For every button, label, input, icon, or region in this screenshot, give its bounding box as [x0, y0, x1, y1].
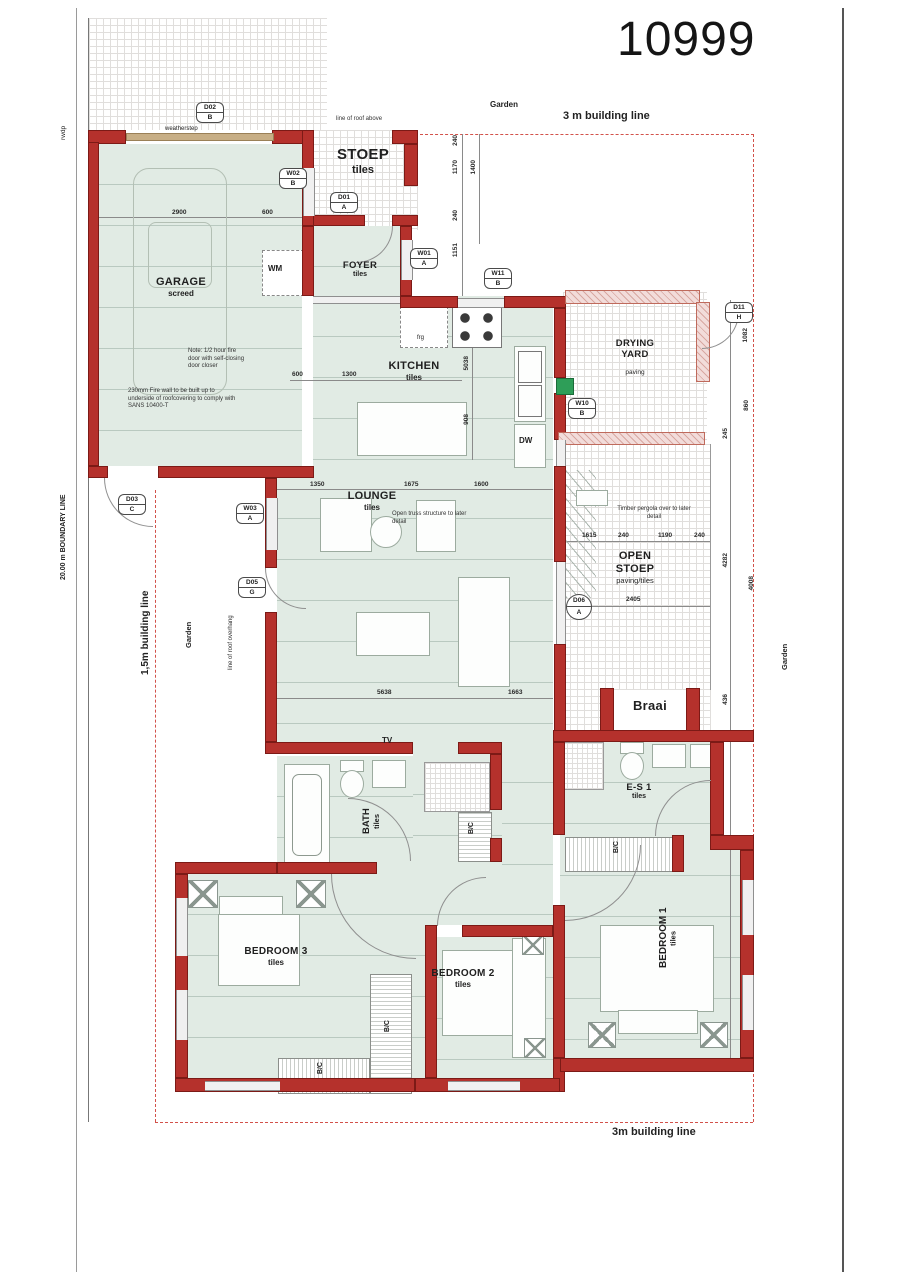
room-label-stoep: STOEP tiles	[320, 146, 406, 177]
dw-label: DW	[519, 436, 532, 445]
screen-wall	[565, 290, 700, 304]
stove	[452, 306, 502, 348]
building-line-label-bottom: 3m building line	[612, 1126, 696, 1138]
room-name: E-S 1	[614, 782, 664, 793]
open-stoep-edge	[710, 444, 711, 690]
room-label-open-stoep: OPEN STOEP paving/tiles	[600, 550, 670, 585]
sink-bowl	[518, 385, 542, 417]
window	[205, 1081, 280, 1091]
opening-rev: G	[239, 588, 265, 597]
fridge	[400, 306, 448, 348]
door-swing-d05	[265, 568, 306, 609]
opening-rev: H	[726, 313, 752, 322]
dim-label: 4282	[722, 553, 729, 567]
armchair	[416, 500, 456, 552]
garage-door	[126, 133, 274, 141]
toilet	[620, 752, 644, 780]
bedside-lamp	[296, 880, 326, 908]
room-label-bedroom1: BEDROOM 1 tiles	[658, 898, 678, 978]
dim-label: 1675	[404, 481, 418, 488]
opening-rev: B	[569, 409, 595, 418]
room-label-drying-yard: DRYING YARD paving	[598, 338, 672, 377]
bathtub-inner	[292, 774, 322, 856]
dim-line	[277, 698, 553, 699]
opening-chip-w02: W02 B	[279, 168, 307, 189]
room-label-bedroom3: BEDROOM 3 tiles	[216, 946, 336, 968]
bic-label: B/C	[468, 822, 475, 834]
room-finish: paving/tiles	[600, 576, 670, 585]
wall	[458, 742, 502, 754]
dim-label: 1082	[742, 328, 749, 342]
wall	[313, 215, 365, 226]
room-label-lounge: LOUNGE tiles	[330, 490, 414, 513]
bic-label: B/C	[317, 1062, 324, 1074]
gate-marker	[556, 378, 574, 395]
wm-label: WM	[268, 264, 282, 273]
opening-rev: B	[485, 279, 511, 288]
opening-chip-d11: D11 H	[725, 302, 753, 323]
dim-label: 240	[694, 532, 705, 539]
dim-label: 240	[452, 135, 459, 146]
cabinet	[458, 577, 510, 687]
opening-chip-w10: W10 B	[568, 398, 596, 419]
dim-label: 1600	[474, 481, 488, 488]
wall	[175, 862, 277, 874]
open-stoep-note: Timber pergola over to later detail	[612, 506, 696, 521]
dim-label: 1151	[452, 243, 459, 257]
bed	[600, 925, 714, 1012]
dim-label: 908	[463, 414, 470, 425]
floor-plan-sheet: 10999 weatherstep	[0, 0, 922, 1280]
dim-label: 2405	[626, 596, 640, 603]
window-w11	[458, 298, 504, 308]
room-label-bedroom2: BEDROOM 2 tiles	[408, 968, 518, 990]
room-finish: paving	[598, 369, 672, 377]
dim-line	[277, 489, 553, 490]
room-name: STOEP	[600, 563, 670, 576]
plan-number: 10999	[617, 12, 755, 67]
room-name: OPEN	[600, 550, 670, 563]
weatherstep-label: weatherstep	[165, 126, 198, 132]
bed	[442, 950, 516, 1036]
opening-rev: C	[119, 505, 145, 514]
dim-line	[479, 134, 480, 244]
wall	[504, 296, 566, 308]
opening-code: W10	[569, 399, 595, 409]
opening-chip-w11: W11 B	[484, 268, 512, 289]
roof-note-top: line of roof above	[336, 116, 406, 124]
wall	[600, 688, 614, 732]
wall	[88, 142, 99, 466]
dim-label: 1350	[310, 481, 324, 488]
wall	[554, 308, 566, 378]
opening-chip-d03: D03 C	[118, 494, 146, 515]
wall	[404, 144, 418, 186]
garden-label-top: Garden	[490, 100, 518, 109]
opening-chip-w03: W03 A	[236, 503, 264, 524]
dim-label: 860	[743, 400, 750, 411]
opening-code: W11	[485, 269, 511, 279]
lounge-note: Open truss structure to later detail	[392, 511, 482, 526]
opening-rev: A	[331, 203, 357, 212]
wall	[392, 130, 418, 144]
drying-yard-door	[556, 440, 566, 466]
bedside-lamp	[524, 1038, 546, 1058]
room-finish: tiles	[408, 980, 518, 990]
room-name: GARAGE	[138, 276, 224, 289]
dim-line	[462, 134, 463, 296]
building-line-top	[420, 134, 754, 135]
dim-label: 240	[452, 210, 459, 221]
coffee-table	[356, 612, 430, 656]
room-label-bath: BATH tiles	[362, 790, 382, 852]
dim-label: 240	[618, 532, 629, 539]
dim-label: 1170	[452, 160, 459, 174]
wall	[672, 835, 684, 872]
washing-machine	[262, 250, 304, 296]
opening-code: D02	[197, 103, 223, 113]
rwdp-label: rwdp	[60, 100, 67, 140]
kitchen-island	[357, 402, 467, 456]
dishwasher	[514, 424, 546, 468]
room-label-garage: GARAGE screed	[138, 276, 224, 299]
room-name: FOYER	[330, 260, 390, 271]
opening-code: D06	[567, 595, 591, 607]
opening-rev: A	[567, 607, 591, 618]
opening-code: W03	[237, 504, 263, 514]
wall	[553, 730, 754, 742]
wall	[425, 925, 437, 1078]
room-name: LOUNGE	[330, 490, 414, 503]
garage-fire-door-note: Note: 1/2 hour fire door with self-closi…	[188, 348, 248, 371]
opening-code: D11	[726, 303, 752, 313]
pillows	[618, 1010, 698, 1034]
wall	[462, 925, 553, 937]
dim-label: 5038	[463, 356, 470, 370]
opening-chip-d02: D02 B	[196, 102, 224, 123]
opening-code: W02	[280, 169, 306, 179]
opening-rev: A	[411, 259, 437, 268]
wall	[560, 1058, 754, 1072]
bench	[576, 490, 608, 506]
bic-cupboard	[370, 974, 412, 1094]
opening-code: D05	[239, 578, 265, 588]
room-label-kitchen: KITCHEN tiles	[372, 360, 456, 383]
opening-chip-d06: D06 A	[566, 594, 592, 620]
wall	[265, 612, 277, 742]
room-finish: tiles	[330, 271, 390, 279]
roof-note-left: line of roof overhang	[228, 580, 236, 670]
bedroom3-door-gap	[377, 862, 415, 874]
window	[176, 990, 188, 1040]
opening-code: D01	[331, 193, 357, 203]
garden-label-right: Garden	[780, 620, 789, 670]
shower	[424, 762, 490, 812]
bic-label: B/C	[613, 841, 620, 853]
garden-label-left: Garden	[184, 598, 193, 648]
room-finish: tiles	[373, 790, 382, 852]
opening-chip-w01: W01 A	[410, 248, 438, 269]
dim-label: 4008	[748, 576, 755, 590]
wall	[400, 296, 458, 308]
opening-chip-d05: D05 G	[238, 577, 266, 598]
room-name: BEDROOM 3	[216, 946, 336, 958]
dim-label: 1300	[342, 371, 356, 378]
dim-label: 245	[722, 428, 729, 439]
dim-label: 1190	[658, 532, 672, 539]
dim-label: 5638	[377, 689, 391, 696]
basin	[652, 744, 686, 768]
room-label-braai: Braai	[622, 698, 678, 714]
opening-rev: B	[280, 179, 306, 188]
dim-label: 436	[722, 694, 729, 705]
wall	[490, 838, 502, 862]
wall	[553, 905, 565, 1058]
room-name: BEDROOM 2	[408, 968, 518, 980]
toilet	[340, 770, 364, 798]
foyer-beam	[313, 296, 400, 304]
corridor-floor	[502, 742, 553, 874]
room-name: KITCHEN	[372, 360, 456, 373]
page-border-left	[76, 8, 77, 1272]
window	[742, 975, 754, 1030]
wall	[553, 742, 565, 835]
dim-label: 1400	[470, 160, 477, 174]
building-line-left	[155, 490, 156, 1122]
fridge-label: frg	[417, 335, 424, 341]
basin	[372, 760, 406, 788]
wall	[686, 688, 700, 732]
room-finish: tiles	[614, 793, 664, 801]
wall	[392, 215, 418, 226]
opening-code: W01	[411, 249, 437, 259]
bic-label: B/C	[384, 1020, 391, 1032]
boundary-line-label: 20.00 m BOUNDARY LINE	[60, 430, 67, 580]
wall	[158, 466, 314, 478]
room-finish: tiles	[320, 164, 406, 177]
room-name: YARD	[598, 349, 672, 360]
dim-label: 1663	[508, 689, 522, 696]
wall	[554, 466, 566, 562]
building-line-label-top: 3 m building line	[563, 110, 650, 122]
room-name: Braai	[622, 698, 678, 714]
pillows	[219, 896, 283, 916]
bic-cupboard	[458, 812, 492, 862]
dim-label: 2900	[172, 209, 186, 216]
bedside-lamp	[188, 880, 218, 908]
wall	[710, 835, 754, 850]
tv-label: TV	[382, 736, 392, 745]
garage-fire-wall-note: 230mm Fire wall to be built up to unders…	[128, 388, 242, 411]
wall	[302, 226, 314, 296]
wall	[710, 742, 724, 835]
window	[176, 898, 188, 956]
room-name: STOEP	[320, 146, 406, 164]
dim-label: 600	[292, 371, 303, 378]
dim-label: 600	[262, 209, 273, 216]
room-label-es1: E-S 1 tiles	[614, 782, 664, 802]
dim-label: 1615	[582, 532, 596, 539]
room-label-foyer: FOYER tiles	[330, 260, 390, 280]
stoep-sliding-door	[556, 562, 566, 644]
room-finish: tiles	[670, 898, 679, 978]
wall	[277, 862, 377, 874]
building-line-bottom	[155, 1122, 753, 1123]
opening-rev: A	[237, 514, 263, 523]
wall	[554, 644, 566, 742]
dim-line	[730, 300, 731, 1058]
sink-bowl	[518, 351, 542, 383]
opening-chip-d01: D01 A	[330, 192, 358, 213]
bedside-lamp	[700, 1022, 728, 1048]
bedside-lamp	[588, 1022, 616, 1048]
page-border-right	[842, 8, 844, 1272]
bedside-lamp	[522, 935, 544, 955]
screen-wall	[558, 432, 705, 445]
opening-code: D03	[119, 495, 145, 505]
opening-rev: B	[197, 113, 223, 122]
wall	[490, 754, 502, 810]
room-finish: tiles	[216, 958, 336, 968]
room-name: DRYING	[598, 338, 672, 349]
room-finish: screed	[138, 289, 224, 299]
room-finish: tiles	[372, 373, 456, 383]
window	[448, 1081, 520, 1091]
wall	[88, 466, 108, 478]
building-line-label-left: 1,5m building line	[140, 545, 151, 675]
window	[742, 880, 754, 935]
window-w03	[266, 498, 278, 550]
